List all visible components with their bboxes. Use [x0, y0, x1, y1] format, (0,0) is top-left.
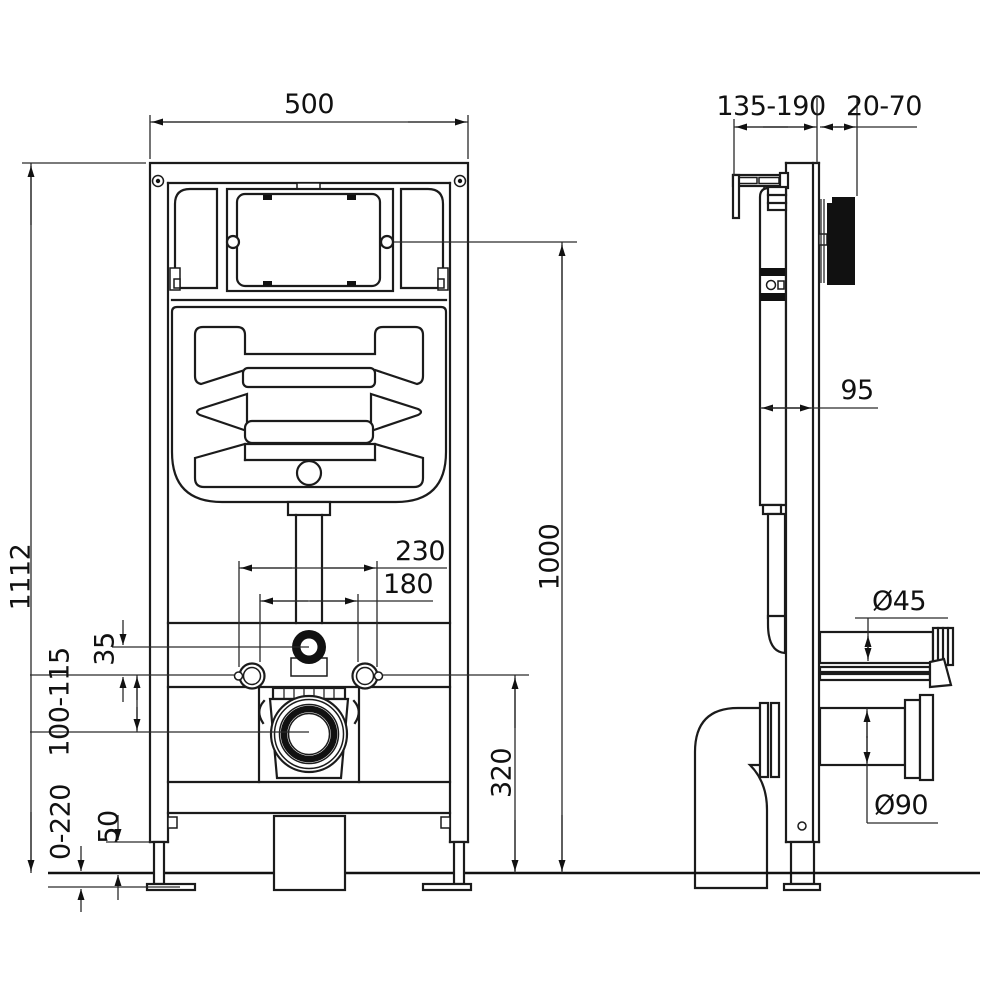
dim-depth-range: 135-190 [716, 91, 825, 122]
cistern-side-panel [401, 189, 443, 288]
adjustable-foot [454, 842, 464, 884]
toilet-frame-technical-drawing: 500 1112 1000 320 230 180 [0, 0, 1000, 1000]
dim-spacing-230: 230 [395, 536, 445, 567]
dim-depth-95: 95 [840, 375, 873, 406]
dim-foot-50: 50 [93, 810, 124, 843]
adjustable-foot-side [791, 842, 814, 884]
dim-range-0-220: 0-220 [45, 784, 76, 860]
foot-adjustment-hole [798, 822, 806, 830]
drain-bend-housing [274, 816, 345, 890]
dim-height-320: 320 [486, 748, 517, 798]
dim-range-100-115: 100-115 [44, 647, 75, 756]
flush-pipe [820, 632, 933, 663]
dim-height-1000: 1000 [534, 524, 565, 591]
window-screw-hole [227, 236, 239, 248]
dim-drain-pipe-diameter: Ø90 [874, 790, 928, 821]
dim-offset-35: 35 [89, 632, 120, 665]
side-view [695, 163, 953, 890]
technical-drawing-page: 500 1112 1000 320 230 180 [0, 0, 1000, 1000]
adjustable-foot [154, 842, 164, 884]
drain-outlet [271, 696, 347, 772]
cistern-tank-side [760, 188, 786, 505]
flush-plate-recess [827, 197, 855, 285]
dim-spacing-180: 180 [383, 569, 433, 600]
front-view [147, 163, 471, 890]
cistern-side-panel [175, 189, 217, 288]
dim-frame-width: 500 [284, 89, 334, 120]
dim-total-height: 1112 [5, 544, 36, 611]
window-screw-hole [381, 236, 393, 248]
dim-wall-offset-range: 20-70 [846, 91, 922, 122]
drain-pipe [820, 708, 905, 765]
dim-flush-pipe-diameter: Ø45 [872, 586, 926, 617]
drain-elbow [695, 708, 767, 888]
